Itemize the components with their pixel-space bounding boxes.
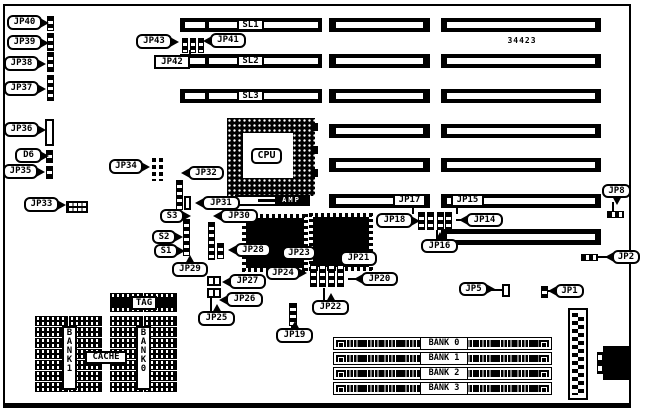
- din-notch: [598, 355, 602, 360]
- simm-socket-bank1: BANK 1: [333, 352, 552, 365]
- simm-latch-right: [539, 370, 549, 377]
- isa-slot-bar: [329, 54, 430, 68]
- cache-bank0-label: B A N K 0: [136, 326, 151, 390]
- slot-stripe: [336, 162, 423, 168]
- callout-jp33: JP33: [24, 197, 59, 212]
- callout-d6: D6: [15, 148, 42, 163]
- din-notch: [598, 366, 602, 371]
- callout-jp25: JP25: [198, 311, 235, 326]
- callout-jp35: JP35: [3, 164, 38, 179]
- tag-ram-label: TAG: [131, 296, 157, 310]
- slot-stripe: [447, 58, 595, 64]
- lever-dash: [258, 199, 275, 202]
- cpu-socket-tab: [312, 169, 318, 177]
- jumper-jp17: [427, 212, 434, 230]
- callout-line-jp15: [456, 207, 458, 214]
- cache-sram-chip: [110, 316, 143, 326]
- part-number: 34423: [500, 37, 544, 47]
- callout-jp16: JP16: [421, 239, 458, 253]
- jumper-jp32: [176, 180, 183, 210]
- simm-latch-left: [336, 370, 346, 377]
- jumper-jp22: [328, 261, 335, 287]
- callout-jp37: JP37: [4, 81, 39, 96]
- cache-sram-chip: [69, 316, 102, 326]
- jumper-jp15-jp14: [445, 212, 452, 230]
- callout-jp26: JP26: [226, 292, 263, 307]
- cpu-socket-tab: [312, 146, 318, 154]
- cache-bank1-label: B A N K 1: [62, 326, 77, 390]
- callout-jp27: JP27: [229, 274, 266, 289]
- simm-bank-label: BANK 1: [420, 352, 468, 365]
- jumper-block-jp33: [66, 201, 88, 213]
- callout-jp40: JP40: [7, 15, 42, 30]
- callout-jp15: JP15: [451, 194, 484, 207]
- simm-bank-label: BANK 0: [420, 337, 468, 350]
- callout-jp18: JP18: [376, 213, 413, 228]
- jumper-jp37: [47, 75, 54, 101]
- socket-brand-text: AMP: [275, 197, 308, 204]
- slot-stripe: [185, 93, 205, 99]
- callout-jp34: JP34: [109, 159, 143, 174]
- callout-s1: S1: [154, 244, 178, 258]
- slot-label-sl1: SL1: [237, 19, 264, 31]
- cache-label: CACHE: [85, 351, 127, 364]
- slot-stripe: [336, 93, 423, 99]
- slot-stripe: [185, 22, 205, 28]
- simm-bank-label: BANK 3: [420, 382, 468, 395]
- simm-latch-right: [539, 340, 549, 347]
- callout-line-jp17: [412, 207, 414, 214]
- cache-sram-chip: [35, 316, 68, 326]
- callout-s2: S2: [152, 230, 176, 244]
- simm-socket-bank2: BANK 2: [333, 367, 552, 380]
- callout-jp29: JP29: [172, 262, 208, 277]
- slot-stripe: [447, 162, 595, 168]
- callout-jp20: JP20: [361, 272, 398, 286]
- connector-jp5: [502, 284, 510, 297]
- jumper-jp28: [217, 243, 224, 259]
- jumper-jp24: [310, 261, 317, 287]
- slot-stripe: [447, 128, 595, 134]
- callout-jp14: JP14: [466, 213, 503, 227]
- connector-pins: [578, 317, 584, 395]
- cpu-label: CPU: [251, 148, 282, 164]
- cache-sram-chip: [144, 316, 177, 326]
- callout-jp31: JP31: [202, 196, 240, 210]
- keyboard-din-connector: [603, 346, 631, 380]
- callout-jp21: JP21: [340, 251, 377, 266]
- isa-slot-bar: [441, 54, 601, 68]
- isa-slot-bar: [441, 158, 601, 172]
- simm-latch-left: [336, 355, 346, 362]
- callout-jp17: JP17: [393, 194, 426, 207]
- jumper-jp16: [437, 212, 444, 230]
- simm-bank-label: BANK 2: [420, 367, 468, 380]
- isa-slot-bar: [329, 124, 430, 138]
- jumper-jp1: [541, 286, 548, 298]
- callout-jp30: JP30: [220, 209, 258, 223]
- callout-jp1: JP1: [555, 284, 584, 298]
- motherboard-diagram: 34423 SL1 SL2 SL3: [0, 0, 645, 416]
- callout-jp28: JP28: [235, 243, 271, 257]
- isa-slot-bar: [441, 89, 601, 103]
- slot-stripe: [447, 234, 595, 240]
- jumper-jp35: [46, 166, 53, 179]
- callout-jp5: JP5: [459, 282, 488, 296]
- connector-jp31: [184, 196, 191, 210]
- cpu-socket-tab: [312, 123, 318, 131]
- callout-jp22: JP22: [312, 300, 349, 315]
- power-connector: [568, 308, 588, 400]
- jumper-jp43: [182, 38, 188, 53]
- callout-jp42: JP42: [154, 55, 190, 69]
- callout-jp23: JP23: [282, 246, 316, 260]
- callout-jp32: JP32: [188, 166, 224, 180]
- slot-stripe: [336, 58, 423, 64]
- isa-slot-bar: [329, 158, 430, 172]
- jumper-jp27: [207, 276, 221, 286]
- jumper-jp2: [581, 254, 598, 261]
- simm-socket-bank0: BANK 0: [333, 337, 552, 350]
- isa-slot-bar: [441, 124, 601, 138]
- slot-label-sl2: SL2: [237, 55, 264, 67]
- isa-slot-bar: [441, 18, 601, 32]
- connector-jp36: [45, 119, 54, 146]
- callout-jp36: JP36: [4, 122, 39, 137]
- simm-latch-right: [539, 385, 549, 392]
- callout-jp38: JP38: [4, 56, 39, 71]
- slot-stripe: [336, 22, 423, 28]
- slot-stripe: [447, 93, 595, 99]
- slot-stripe: [336, 128, 423, 134]
- callout-jp39: JP39: [7, 35, 42, 50]
- jumper-jp30-jp29: [208, 222, 215, 260]
- simm-socket-bank3: BANK 3: [333, 382, 552, 395]
- callout-jp43: JP43: [136, 34, 172, 49]
- jumper-jp8: [607, 211, 624, 218]
- simm-latch-right: [539, 355, 549, 362]
- slot-label-sl3: SL3: [237, 90, 264, 102]
- isa-slot-bar: [441, 229, 601, 245]
- slot-stripe: [447, 22, 595, 28]
- simm-latch-left: [336, 385, 346, 392]
- callout-s3: S3: [160, 209, 184, 223]
- callout-jp24: JP24: [266, 266, 300, 280]
- isa-slot-bar: [329, 18, 430, 32]
- cpu-socket-lever-bar: AMP: [235, 195, 310, 206]
- callout-jp2: JP2: [612, 250, 640, 264]
- callout-jp8: JP8: [602, 184, 631, 198]
- callout-jp41: JP41: [210, 33, 246, 48]
- callout-jp19: JP19: [276, 328, 313, 343]
- jumper-jp23: [319, 261, 326, 287]
- jumper-jp38: [47, 52, 54, 72]
- simm-latch-left: [336, 340, 346, 347]
- jumper-block-jp34: [152, 158, 163, 181]
- isa-slot-bar: [329, 89, 430, 103]
